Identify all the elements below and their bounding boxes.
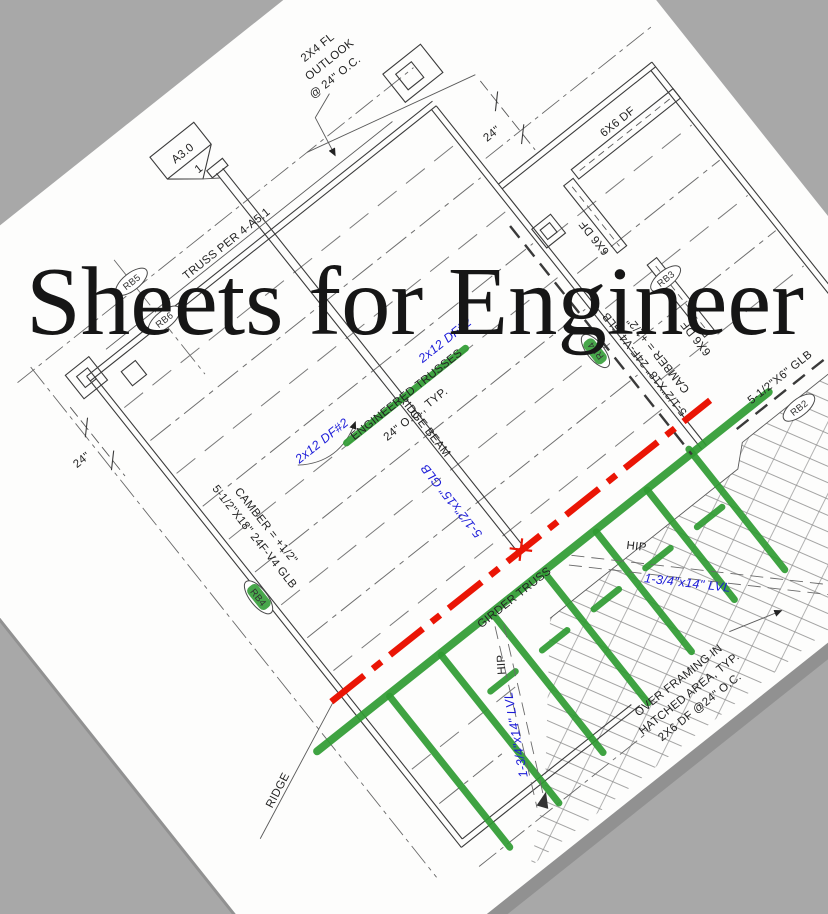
framing-plan-image: RIDGE BEAM 5-1/2"x15" GLB A3.0 1 TRUSS P… (0, 0, 828, 914)
hip-label-right: HIP (626, 540, 647, 554)
screenshot-root: RIDGE BEAM 5-1/2"x15" GLB A3.0 1 TRUSS P… (0, 0, 828, 914)
overlay-title: Sheets for Engineer (26, 248, 804, 355)
hip-label-left: HIP (495, 654, 508, 675)
